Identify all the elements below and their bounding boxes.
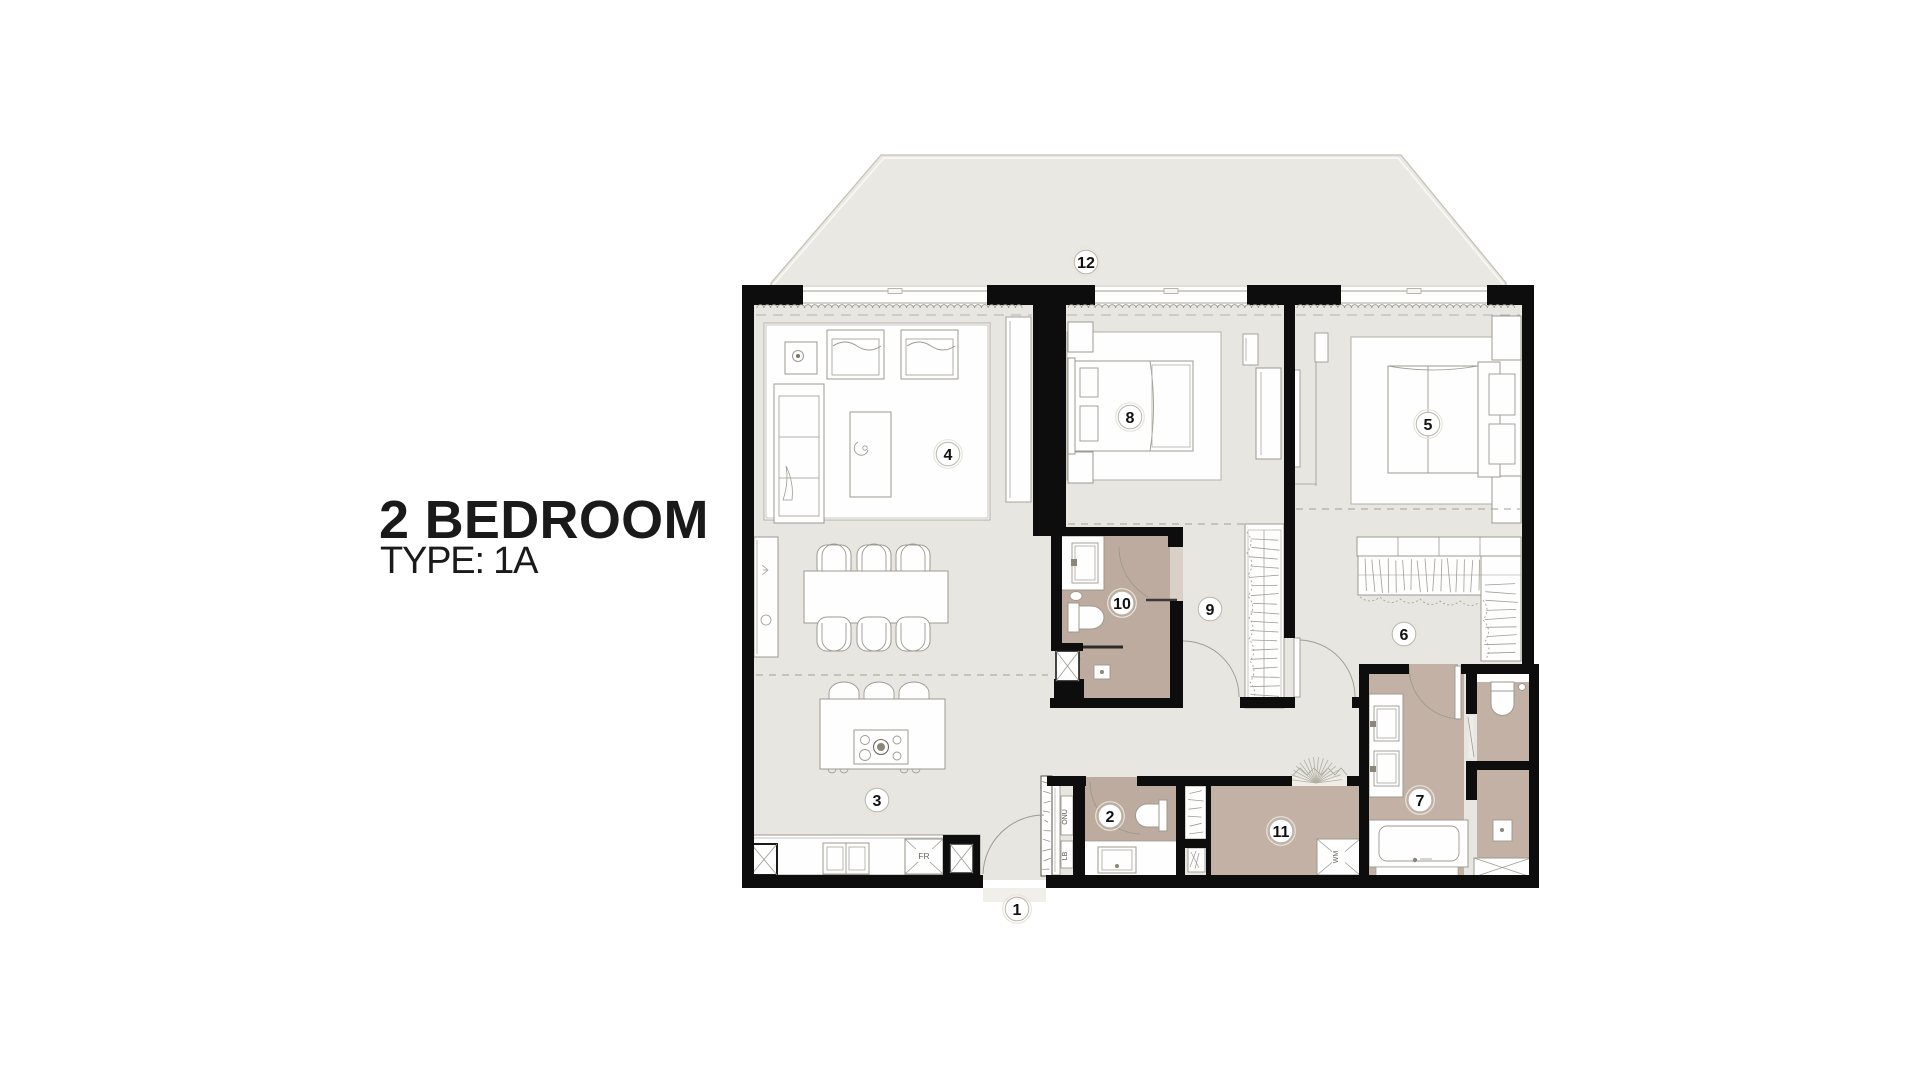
svg-text:WM: WM <box>1333 851 1340 864</box>
svg-text:5: 5 <box>1424 417 1433 434</box>
svg-text:9: 9 <box>1206 602 1215 619</box>
svg-text:1: 1 <box>1013 902 1022 919</box>
svg-text:2: 2 <box>1106 809 1115 826</box>
svg-text:3: 3 <box>873 793 882 810</box>
svg-text:11: 11 <box>1273 824 1290 841</box>
svg-text:4: 4 <box>944 447 953 464</box>
svg-text:6: 6 <box>1400 627 1409 644</box>
svg-text:FR: FR <box>918 851 929 861</box>
svg-text:12: 12 <box>1077 255 1095 272</box>
svg-text:ONU: ONU <box>1062 809 1069 825</box>
svg-text:LB: LB <box>1062 851 1069 860</box>
svg-text:8: 8 <box>1126 410 1135 427</box>
svg-text:10: 10 <box>1113 596 1131 613</box>
svg-text:7: 7 <box>1416 793 1425 810</box>
